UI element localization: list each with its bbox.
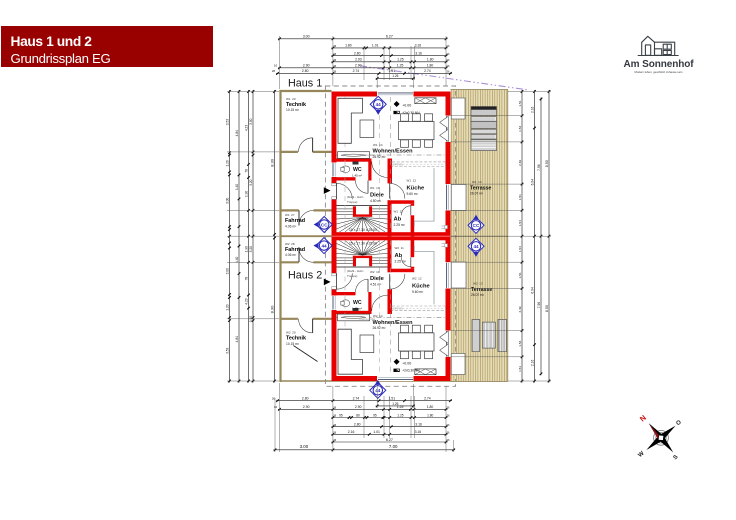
svg-text:Am Sonnenhof: Am Sonnenhof [624,59,695,70]
svg-text:10.15 m²: 10.15 m² [286,108,300,112]
svg-text:1.80: 1.80 [427,64,434,68]
svg-text:WC: WC [353,300,362,306]
svg-text:Technik: Technik [286,102,306,108]
svg-text:Grundrissplan EG: Grundrissplan EG [11,51,111,66]
svg-text:2.80: 2.80 [354,423,361,427]
svg-text:Wohnen/Essen: Wohnen/Essen [373,149,414,155]
svg-text:6.04: 6.04 [530,287,534,294]
svg-text:1.45 m²: 1.45 m² [352,307,362,311]
svg-text:44: 44 [376,102,382,107]
svg-text:44: 44 [321,243,327,248]
svg-text:2.25 m²: 2.25 m² [395,259,407,263]
svg-text:2.90: 2.90 [355,64,362,68]
svg-text:10.15 m²: 10.15 m² [286,342,300,346]
svg-text:3.16: 3.16 [415,423,422,427]
svg-text:2.74: 2.74 [353,397,360,401]
svg-text:4.50 m²: 4.50 m² [370,199,382,203]
svg-text:2.80: 2.80 [302,397,309,401]
svg-text:1.01: 1.01 [373,430,380,434]
svg-text:Fahrrad: Fahrrad [285,218,305,224]
svg-text:+0.00: +0.00 [402,361,411,365]
svg-text:W1 13: W1 13 [472,180,482,184]
svg-text:W2 11: W2 11 [395,246,405,250]
svg-text:1.80: 1.80 [427,58,434,62]
svg-text:W1 11: W1 11 [394,209,404,213]
svg-text:3.00: 3.00 [225,268,229,274]
svg-text:1.51: 1.51 [518,194,522,200]
svg-text:1.51: 1.51 [518,272,522,278]
svg-text:WC: WC [353,167,362,173]
svg-text:3.00: 3.00 [225,197,229,203]
svg-text:1.20: 1.20 [225,160,229,166]
svg-text:8.50: 8.50 [545,160,549,167]
svg-text:Küche: Küche [407,186,425,192]
svg-text:26.07 m²: 26.07 m² [470,192,484,196]
svg-text:W2 28: W2 28 [285,242,295,246]
svg-text:2.39: 2.39 [518,160,522,166]
svg-text:4.84: 4.84 [235,130,239,136]
svg-text:Treppe): Treppe) [347,274,357,278]
svg-text:80: 80 [356,413,360,417]
svg-text:1.90: 1.90 [244,191,248,197]
svg-text:W1 27: W1 27 [285,213,295,217]
svg-text:3.20: 3.20 [249,179,253,185]
svg-text:W2 29: W2 29 [286,331,296,335]
svg-text:2.16: 2.16 [348,430,355,434]
svg-text:W2 13: W2 13 [473,282,483,286]
svg-text:8.30: 8.30 [269,158,274,167]
svg-text:1.25: 1.25 [397,58,404,62]
svg-text:CC: CC [473,223,480,228]
svg-text:95: 95 [373,413,377,417]
svg-text:Unterzug über: Unterzug über [359,153,376,157]
svg-text:95: 95 [339,413,343,417]
svg-text:(Dahl.- Holz-: (Dahl.- Holz- [347,269,364,273]
svg-text:2.16: 2.16 [530,106,534,113]
svg-text:Fahrrad: Fahrrad [285,247,305,253]
svg-text:1.25: 1.25 [397,405,404,409]
svg-text:2.90: 2.90 [303,64,310,68]
svg-text:8.30: 8.30 [269,305,274,314]
svg-text:4.84: 4.84 [235,336,239,342]
svg-text:CC: CC [321,222,328,227]
svg-text:26.92 m²: 26.92 m² [373,326,387,330]
svg-text:2.93: 2.93 [355,58,362,62]
svg-text:Ab: Ab [394,217,402,223]
svg-text:1.40: 1.40 [235,256,239,262]
svg-text:W1 12: W1 12 [407,178,417,182]
svg-text:(Dahl.- Holz-: (Dahl.- Holz- [347,195,364,199]
svg-text:Treppe): Treppe) [347,200,357,204]
svg-text:1.25: 1.25 [397,64,404,68]
svg-text:Modern leben, geschützt zuhaus: Modern leben, geschützt zuhause sein [635,70,683,74]
svg-text:Unterzug über: Unterzug über [359,317,376,321]
svg-text:4.23: 4.23 [244,298,248,304]
svg-text:78: 78 [244,277,248,281]
svg-text:1.80: 1.80 [345,44,352,48]
svg-text:3.53: 3.53 [225,119,229,125]
svg-text:Wohnen/Essen: Wohnen/Essen [373,320,414,326]
svg-text:10: 10 [274,405,278,409]
svg-text:20: 20 [272,397,276,401]
svg-text:2.74: 2.74 [424,69,431,73]
svg-text:2.80: 2.80 [354,51,361,55]
svg-text:3.00: 3.00 [300,444,309,449]
svg-text:4.51 m²: 4.51 m² [370,283,382,287]
svg-text:44: 44 [473,244,479,249]
svg-text:9.60 m²: 9.60 m² [412,290,424,294]
svg-text:10: 10 [274,64,278,68]
svg-text:1.51: 1.51 [518,366,522,372]
svg-text:15 x 17.30 x 25.00: 15 x 17.30 x 25.00 [349,228,377,232]
svg-text:OPTION: OPTION [393,162,403,166]
svg-text:Diele: Diele [370,192,385,198]
svg-text:1.54: 1.54 [518,246,522,252]
svg-text:3.16: 3.16 [415,430,422,434]
svg-text:4.06 m²: 4.06 m² [285,224,297,228]
svg-text:Haus 2: Haus 2 [288,270,322,282]
svg-text:2.90: 2.90 [303,405,310,409]
svg-text:W1 14: W1 14 [373,143,383,147]
svg-text:W1 10: W1 10 [370,186,380,190]
svg-text:1.54: 1.54 [518,220,522,226]
svg-text:4.06 m²: 4.06 m² [285,253,297,257]
svg-text:6.27: 6.27 [386,438,393,442]
svg-text:Küche: Küche [412,284,430,290]
svg-text:6.04: 6.04 [530,179,534,186]
svg-text:1.40: 1.40 [235,184,239,190]
svg-text:Diele: Diele [370,276,385,282]
svg-text:Technik: Technik [286,336,306,342]
svg-text:Ab: Ab [395,253,403,259]
svg-text:3.20: 3.20 [249,246,253,252]
svg-text:+0.00: +0.00 [402,104,411,108]
svg-text:1.26: 1.26 [392,74,398,78]
svg-text:44: 44 [375,388,381,393]
svg-text:3.16: 3.16 [415,44,422,48]
svg-text:1.90: 1.90 [244,246,248,252]
svg-text:W2 10: W2 10 [370,270,380,274]
svg-text:7.96: 7.96 [537,164,541,171]
svg-text:2.16: 2.16 [530,360,534,367]
svg-text:OPTION: OPTION [393,306,403,310]
svg-text:8.50: 8.50 [545,305,549,312]
svg-text:1.01: 1.01 [372,44,379,48]
svg-text:+2x0,30 NN: +2x0,30 NN [402,111,420,115]
svg-text:2.74: 2.74 [353,69,360,73]
svg-text:1.45 m²: 1.45 m² [352,174,362,178]
svg-text:3.16: 3.16 [415,51,422,55]
svg-text:15 x 17.30 x 25.00: 15 x 17.30 x 25.00 [349,242,377,246]
svg-text:+2x0,30 NN: +2x0,30 NN [402,369,420,373]
svg-text:1.80: 1.80 [427,413,433,417]
svg-text:3.53: 3.53 [225,347,229,353]
svg-text:2.39: 2.39 [518,306,522,312]
svg-text:6.27: 6.27 [386,35,393,39]
svg-text:78: 78 [244,169,248,173]
svg-text:Haus 1: Haus 1 [288,78,322,90]
svg-text:4.23: 4.23 [244,125,248,131]
svg-text:1.80: 1.80 [427,405,434,409]
svg-text:20: 20 [272,69,276,73]
svg-text:3.50: 3.50 [249,118,253,124]
svg-text:2.25 m²: 2.25 m² [394,223,406,227]
svg-text:1.20: 1.20 [225,304,229,310]
svg-text:Haus 1 und 2: Haus 1 und 2 [11,34,93,49]
svg-text:1.25: 1.25 [397,413,403,417]
svg-text:26.07 m²: 26.07 m² [471,293,485,297]
svg-text:W2 12: W2 12 [412,276,422,280]
svg-text:1.54: 1.54 [518,340,522,346]
svg-text:2.80: 2.80 [302,69,309,73]
svg-text:7.00: 7.00 [389,444,398,449]
svg-text:2.74: 2.74 [424,397,431,401]
svg-text:W1 20: W1 20 [286,97,296,101]
svg-text:1.54: 1.54 [518,126,522,132]
svg-text:1.51: 1.51 [518,100,522,106]
svg-text:7.96: 7.96 [537,302,541,309]
svg-text:3.00: 3.00 [303,35,310,39]
svg-text:9.60 m²: 9.60 m² [407,192,419,196]
svg-text:2.90: 2.90 [355,405,362,409]
